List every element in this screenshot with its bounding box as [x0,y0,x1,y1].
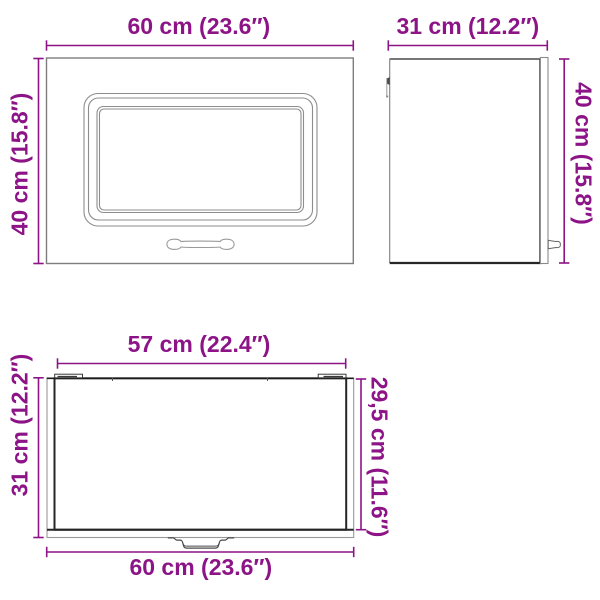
svg-text:29,5 cm (11.6″): 29,5 cm (11.6″) [367,377,393,538]
svg-text:60 cm (23.6″): 60 cm (23.6″) [129,554,272,580]
svg-text:31 cm (12.2″): 31 cm (12.2″) [7,354,33,497]
svg-text:57 cm (22.4″): 57 cm (22.4″) [128,331,271,357]
svg-text:40 cm (15.8″): 40 cm (15.8″) [7,93,33,236]
svg-text:31 cm (12.2″): 31 cm (12.2″) [396,13,539,39]
svg-text:60 cm (23.6″): 60 cm (23.6″) [127,13,270,39]
svg-text:40 cm (15.8″): 40 cm (15.8″) [571,82,597,225]
